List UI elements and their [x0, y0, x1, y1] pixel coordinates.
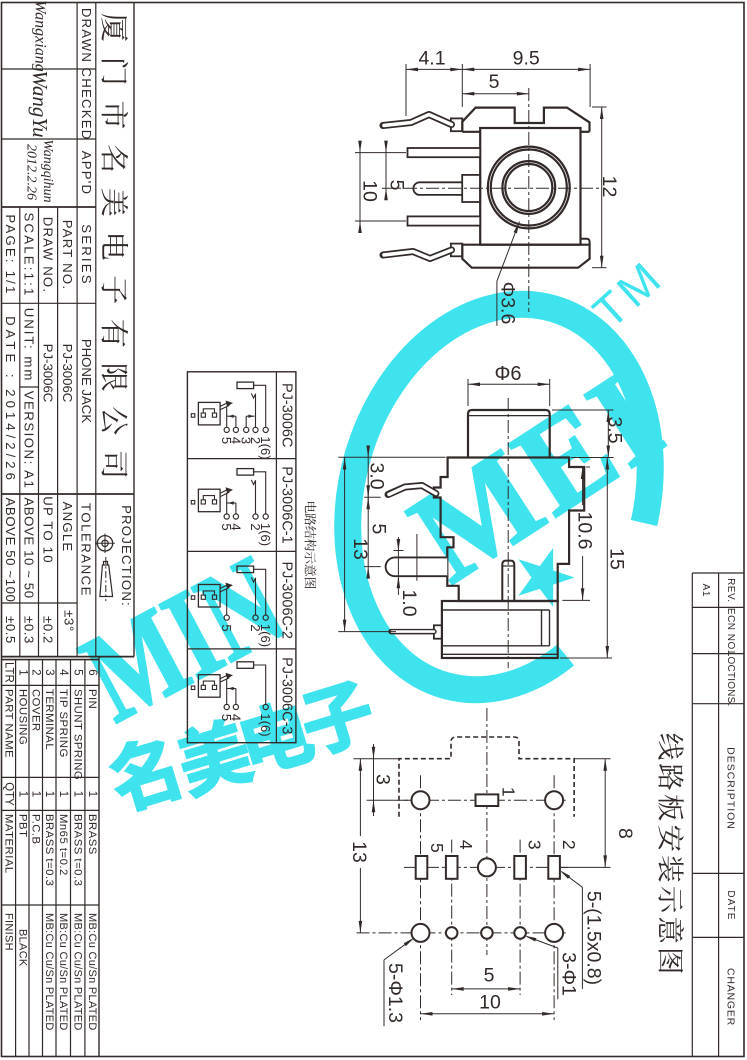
svg-text:4.1: 4.1: [418, 48, 445, 70]
svg-text:PART NO.: PART NO.: [60, 220, 75, 290]
svg-text:ABOVE 50 ~100: ABOVE 50 ~100: [3, 498, 18, 603]
svg-text:5-(1.5x0.8): 5-(1.5x0.8): [583, 891, 605, 985]
svg-text:3.5: 3.5: [604, 416, 626, 443]
svg-text:8: 8: [614, 828, 636, 839]
svg-text:P.C.B: P.C.B: [30, 814, 42, 845]
svg-text:4: 4: [228, 714, 243, 721]
svg-text:UNIT: mm: UNIT: mm: [21, 308, 36, 383]
svg-text:3: 3: [525, 840, 545, 850]
svg-text:SERIES: SERIES: [79, 224, 94, 286]
svg-text:CHANGER: CHANGER: [725, 968, 737, 1026]
svg-text:Mn65 t=0.2: Mn65 t=0.2: [57, 814, 69, 876]
svg-text:12: 12: [598, 176, 620, 198]
svg-text:1: 1: [16, 669, 28, 675]
svg-text:5: 5: [72, 669, 84, 675]
svg-text:1: 1: [43, 791, 55, 797]
svg-text:6: 6: [86, 669, 98, 675]
svg-text:HOUSING: HOUSING: [16, 689, 28, 745]
svg-text:VERSION: A1: VERSION: A1: [21, 391, 36, 490]
svg-text:PROJECTION:: PROJECTION:: [119, 505, 134, 607]
svg-text:5: 5: [427, 843, 447, 853]
svg-text:DATE: DATE: [725, 890, 736, 920]
svg-text:Wangqihun: Wangqihun: [40, 139, 55, 202]
svg-text:1: 1: [86, 791, 98, 797]
svg-text:UP TO 10: UP TO 10: [41, 496, 56, 564]
svg-text:QTY: QTY: [3, 782, 15, 806]
svg-text:1(6): 1(6): [258, 523, 273, 546]
svg-text:PJ-3006C: PJ-3006C: [41, 344, 56, 403]
svg-text:3: 3: [43, 669, 55, 675]
svg-text:10: 10: [479, 991, 501, 1013]
svg-text:5: 5: [489, 71, 500, 93]
svg-text:PHONE JACK: PHONE JACK: [79, 339, 94, 423]
svg-text:LOCTIONS.: LOCTIONS.: [725, 651, 736, 707]
svg-text:5: 5: [386, 180, 408, 191]
svg-text:5: 5: [219, 624, 234, 631]
svg-text:PART NAME: PART NAME: [3, 689, 15, 758]
svg-text:REV.: REV.: [725, 578, 736, 602]
svg-text:PJ-3006C: PJ-3006C: [60, 344, 75, 403]
svg-text:±3°: ±3°: [62, 610, 77, 632]
svg-text:1: 1: [57, 791, 69, 797]
svg-text:2012.2.26: 2012.2.26: [24, 144, 39, 200]
svg-text:2: 2: [559, 840, 579, 850]
svg-text:SCALE:1:1: SCALE:1:1: [21, 212, 36, 297]
svg-text:1: 1: [72, 791, 84, 797]
svg-text:FINISH: FINISH: [3, 913, 15, 951]
svg-text:4: 4: [228, 523, 243, 530]
svg-text:DATE : 2014/2/26: DATE : 2014/2/26: [3, 316, 18, 484]
svg-text:MB:Cu Cu/Sn PLATED: MB:Cu Cu/Sn PLATED: [57, 913, 69, 1031]
svg-text:APP'D: APP'D: [79, 151, 94, 195]
svg-text:1.0: 1.0: [398, 589, 420, 616]
svg-text:A1: A1: [700, 584, 711, 597]
svg-text:13: 13: [348, 841, 370, 863]
svg-text:TIP SPRING: TIP SPRING: [57, 689, 69, 758]
svg-text:PIN: PIN: [86, 689, 98, 709]
svg-text:2: 2: [30, 669, 42, 675]
svg-text:3-Φ1: 3-Φ1: [558, 952, 580, 996]
svg-text:CHECKED: CHECKED: [79, 68, 94, 141]
svg-text:WangYu: WangYu: [28, 70, 52, 137]
svg-text:5: 5: [484, 964, 495, 986]
svg-text:ABOVE 10 ~ 50: ABOVE 10 ~ 50: [21, 497, 36, 598]
svg-text:Wangxiang: Wangxiang: [32, 0, 49, 71]
svg-text:±0.3: ±0.3: [21, 616, 36, 644]
svg-text:DESCRIPTION: DESCRIPTION: [725, 747, 737, 830]
svg-text:MATERIAL: MATERIAL: [3, 814, 15, 874]
svg-text:PJ-3006C-2: PJ-3006C-2: [278, 562, 294, 639]
svg-text:BRASS: BRASS: [86, 814, 98, 855]
svg-text:Φ6: Φ6: [494, 363, 521, 385]
svg-text:±0.2: ±0.2: [41, 616, 56, 644]
svg-text:PJ-3006C: PJ-3006C: [278, 383, 294, 447]
svg-text:4: 4: [57, 669, 69, 676]
svg-text:PJ-3006C-3: PJ-3006C-3: [278, 657, 294, 734]
svg-text:SHUNT SPRING: SHUNT SPRING: [72, 689, 84, 780]
svg-text:TERMINAL: TERMINAL: [43, 689, 55, 750]
svg-text:MB:Cu Cu/Sn PLATED: MB:Cu Cu/Sn PLATED: [86, 913, 98, 1031]
svg-text:1(6): 1(6): [258, 624, 273, 647]
svg-text:PAGE: 1/1: PAGE: 1/1: [3, 214, 18, 295]
svg-text:MB:Cu Cu/Sn PLATED: MB:Cu Cu/Sn PLATED: [72, 913, 84, 1031]
svg-text:Φ3.6: Φ3.6: [497, 282, 519, 325]
svg-text:PJ-3006C-1: PJ-3006C-1: [278, 466, 294, 543]
svg-text:1: 1: [499, 787, 519, 797]
svg-text:1(6): 1(6): [258, 436, 273, 459]
svg-text:±0.5: ±0.5: [3, 616, 18, 644]
svg-text:ANGLE: ANGLE: [60, 502, 75, 553]
svg-text:4: 4: [456, 840, 476, 850]
svg-text:TOLERANCE: TOLERANCE: [78, 503, 93, 597]
svg-text:5-Φ1.3: 5-Φ1.3: [384, 963, 406, 1023]
svg-text:LTR: LTR: [3, 662, 15, 683]
svg-text:BRASS t=0.3: BRASS t=0.3: [43, 814, 55, 886]
svg-text:13: 13: [349, 538, 371, 560]
svg-text:15: 15: [606, 548, 628, 570]
svg-text:10: 10: [359, 180, 381, 202]
svg-text:DRAW NO.: DRAW NO.: [41, 217, 56, 294]
svg-text:5: 5: [367, 524, 389, 535]
svg-text:3: 3: [372, 774, 394, 785]
svg-text:DRAWN: DRAWN: [79, 8, 94, 63]
svg-text:PBT: PBT: [16, 814, 28, 837]
svg-text:9.5: 9.5: [513, 48, 540, 70]
svg-text:BLACK: BLACK: [16, 929, 28, 967]
svg-text:COVER: COVER: [30, 689, 42, 732]
svg-text:10.6: 10.6: [574, 512, 596, 550]
svg-text:1(6): 1(6): [258, 713, 273, 736]
svg-text:BRASS t=0.3: BRASS t=0.3: [72, 814, 84, 886]
svg-text:MB:Cu Cu/Sn PLATED: MB:Cu Cu/Sn PLATED: [43, 913, 55, 1031]
svg-text:1: 1: [30, 791, 42, 797]
svg-text:ECN NO.: ECN NO.: [725, 608, 736, 653]
svg-text:1: 1: [16, 791, 28, 797]
